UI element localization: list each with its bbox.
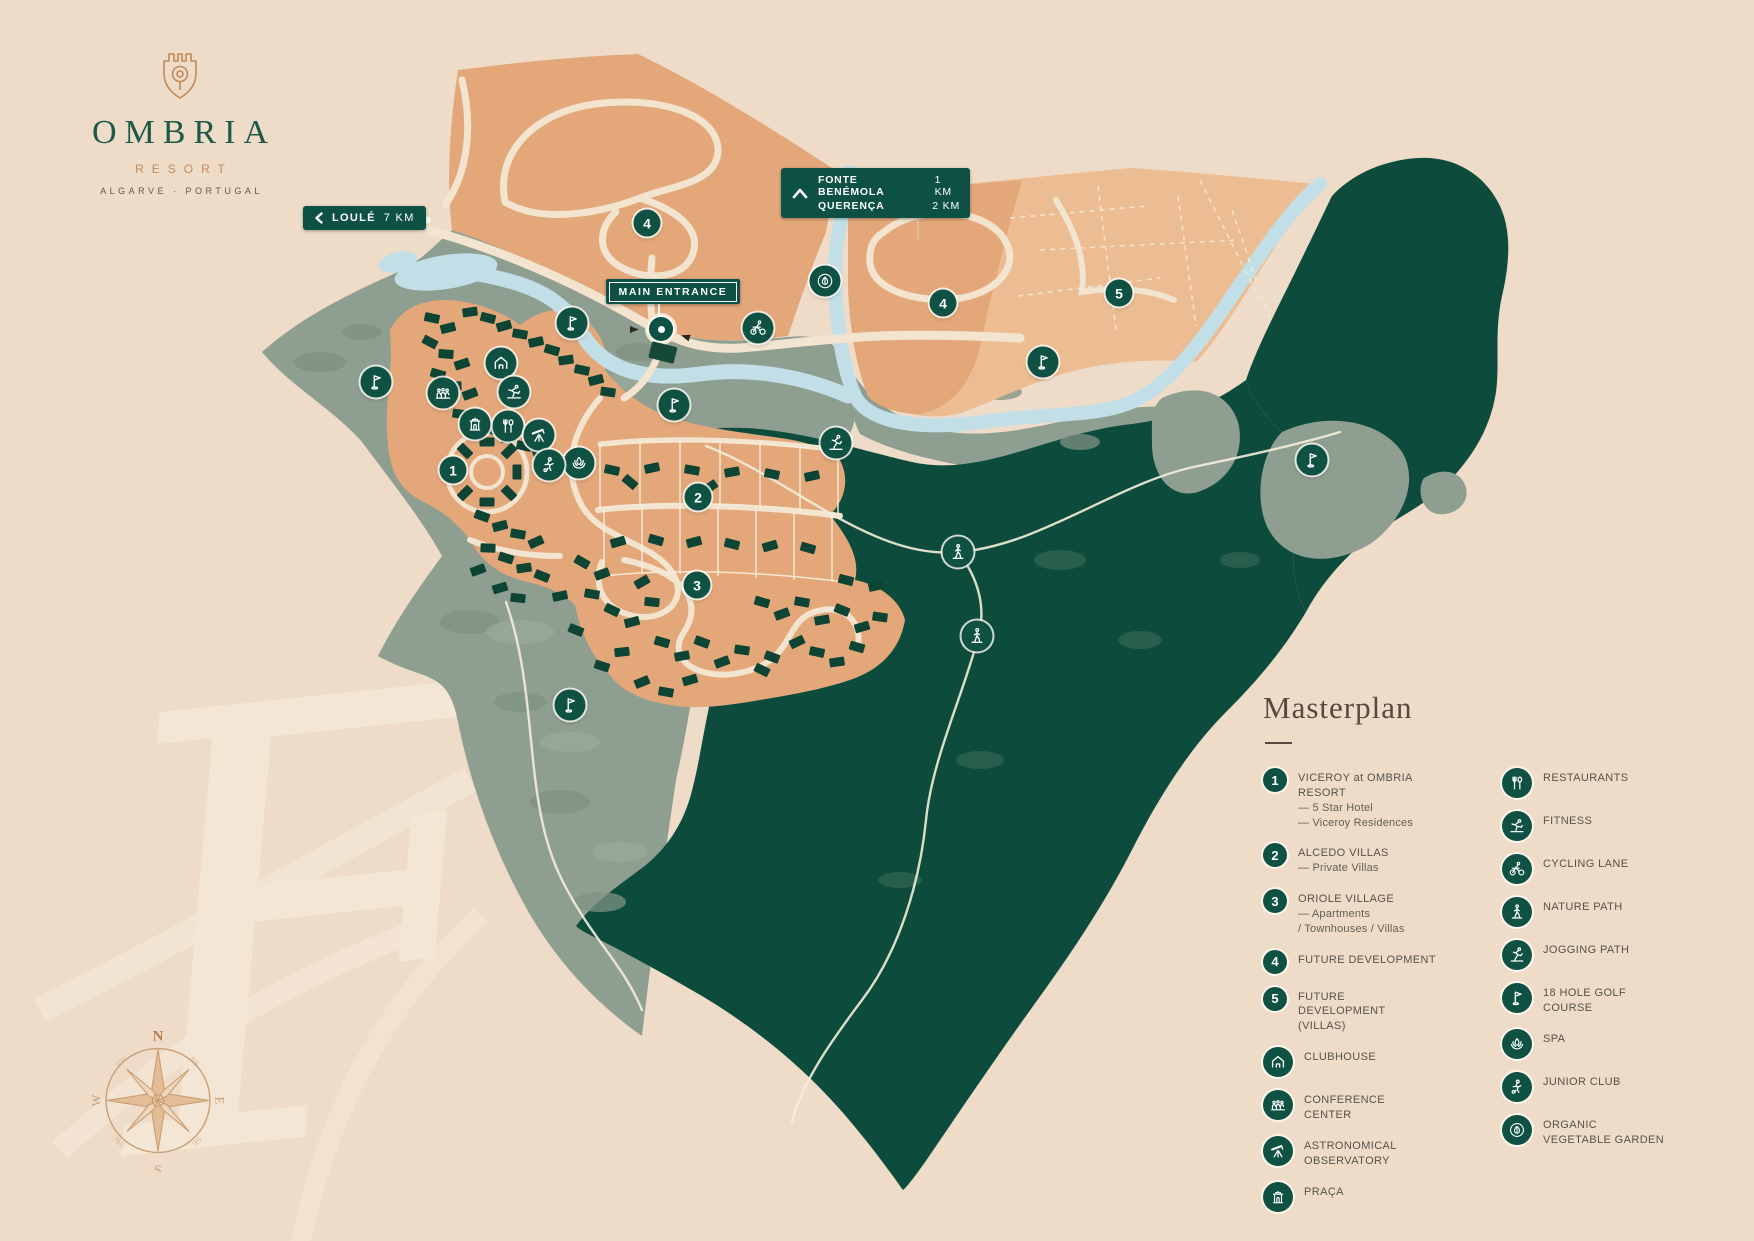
loule-distance: 7 KM (384, 212, 415, 224)
svg-text:SW: SW (112, 1134, 127, 1149)
fitness-icon (1502, 811, 1532, 841)
legend-marker-4: 4 (1263, 950, 1287, 974)
map-marker-alcedo: 2 (685, 484, 712, 511)
nature-path-icon (943, 537, 974, 568)
logo-location: ALGARVE · PORTUGAL (83, 186, 280, 196)
cycling-lane-icon (1502, 854, 1532, 884)
legend-item-junior: JUNIOR CLUB (1502, 1072, 1685, 1102)
map-marker-future-east: 4 (930, 290, 957, 317)
praca-icon (460, 409, 491, 440)
compass-west: W (89, 1094, 103, 1106)
legend-item-observatory: ASTRONOMICAL OBSERVATORY (1263, 1136, 1462, 1169)
querenca-name: QUERENÇA (818, 200, 885, 212)
legend-marker-5: 5 (1263, 987, 1287, 1011)
golf-course-icon (361, 367, 392, 398)
conference-center-icon (1263, 1090, 1293, 1120)
legend-item-future: 4 FUTURE DEVELOPMENT (1263, 950, 1462, 974)
observatory-icon (524, 420, 555, 451)
legend-marker-1: 1 (1263, 768, 1287, 792)
compass-north: N (153, 1028, 164, 1044)
organic-garden-icon (1502, 1115, 1532, 1145)
main-entrance-label: MAIN ENTRANCE (609, 282, 738, 302)
legend-item-conference: CONFERENCE CENTER (1263, 1090, 1462, 1123)
praca-icon (1263, 1182, 1293, 1212)
querenca-km: 2 KM (932, 200, 960, 212)
chevron-up-icon (791, 186, 809, 200)
resort-logo: OMBRIA RESORT ALGARVE · PORTUGAL (80, 48, 280, 196)
legend-item-alcedo: 2 ALCEDO VILLAS— Private Villas (1263, 843, 1462, 876)
spa-icon (1502, 1029, 1532, 1059)
golf-course-icon (1028, 347, 1059, 378)
compass-east: E (213, 1097, 227, 1105)
cycling-lane-icon (743, 313, 774, 344)
fitness-icon (499, 377, 530, 408)
golf-course-icon (1297, 445, 1328, 476)
loule-label: LOULÉ (332, 212, 376, 224)
legend-item-garden: ORGANIC VEGETABLE GARDEN (1502, 1115, 1685, 1148)
main-entrance-marker (649, 317, 673, 341)
legend-item-golf: 18 HOLE GOLF COURSE (1502, 983, 1685, 1016)
svg-text:NE: NE (187, 1055, 201, 1069)
legend-item-praca: PRAÇA (1263, 1182, 1462, 1212)
legend: Masterplan 1 VICEROY at OMBRIA RESORT— 5… (1263, 690, 1685, 1212)
observatory-icon (1263, 1136, 1293, 1166)
legend-item-fitness: FITNESS (1502, 811, 1685, 841)
fonte-name: FONTE BENÉMOLA (818, 174, 919, 198)
legend-item-restaurants: RESTAURANTS (1502, 768, 1685, 798)
logo-name: OMBRIA (88, 114, 280, 152)
loule-direction-sign: LOULÉ 7 KM (303, 206, 426, 230)
clubhouse-icon (486, 348, 517, 379)
map-marker-future-villas: 5 (1106, 280, 1133, 307)
golf-course-icon (659, 390, 690, 421)
map-marker-future-north: 4 (634, 210, 661, 237)
legend-item-oriole: 3 ORIOLE VILLAGE— Apartments/ Townhouses… (1263, 889, 1462, 937)
compass-south: S (154, 1162, 162, 1172)
legend-divider (1265, 742, 1292, 744)
legend-item-cycling: CYCLING LANE (1502, 854, 1685, 884)
legend-item-jogging: JOGGING PATH (1502, 940, 1685, 970)
map-marker-viceroy: 1 (440, 457, 467, 484)
restaurants-icon (493, 411, 524, 442)
main-entrance-sign: MAIN ENTRANCE (606, 279, 740, 304)
golf-course-icon (555, 690, 586, 721)
compass-rose: N S E W NW NE SW SE (88, 1022, 228, 1172)
nature-path-icon (1502, 897, 1532, 927)
legend-column-right: RESTAURANTS FITNESS CYCLING LANE NATURE … (1502, 768, 1685, 1212)
junior-club-icon (1502, 1072, 1532, 1102)
legend-item-viceroy: 1 VICEROY at OMBRIA RESORT— 5 Star Hotel… (1263, 768, 1462, 830)
legend-item-nature: NATURE PATH (1502, 897, 1685, 927)
jogging-path-icon (821, 428, 852, 459)
nature-path-icon (962, 621, 993, 652)
castle-crest-icon (154, 48, 206, 104)
legend-item-spa: SPA (1502, 1029, 1685, 1059)
jogging-path-icon (1502, 940, 1532, 970)
fonte-km: 1 KM (935, 174, 960, 198)
legend-item-clubhouse: CLUBHOUSE (1263, 1047, 1462, 1077)
spa-icon (564, 448, 595, 479)
restaurants-icon (1502, 768, 1532, 798)
clubhouse-icon (1263, 1047, 1293, 1077)
map-marker-oriole: 3 (684, 572, 711, 599)
legend-marker-2: 2 (1263, 843, 1287, 867)
svg-text:SE: SE (190, 1135, 203, 1148)
legend-title: Masterplan (1263, 690, 1685, 726)
svg-text:NW: NW (114, 1054, 130, 1070)
junior-club-icon (534, 450, 565, 481)
logo-subtitle: RESORT (88, 162, 280, 176)
legend-marker-3: 3 (1263, 889, 1287, 913)
golf-course-icon (1502, 983, 1532, 1013)
golf-course-icon (557, 308, 588, 339)
organic-garden-icon (810, 266, 841, 297)
chevron-left-icon (314, 212, 324, 224)
conference-center-icon (428, 378, 459, 409)
legend-item-future-villas: 5 FUTURE DEVELOPMENT (VILLAS) (1263, 987, 1462, 1035)
legend-column-left: 1 VICEROY at OMBRIA RESORT— 5 Star Hotel… (1263, 768, 1462, 1212)
fonte-direction-sign: FONTE BENÉMOLA1 KM QUERENÇA2 KM (781, 168, 970, 218)
